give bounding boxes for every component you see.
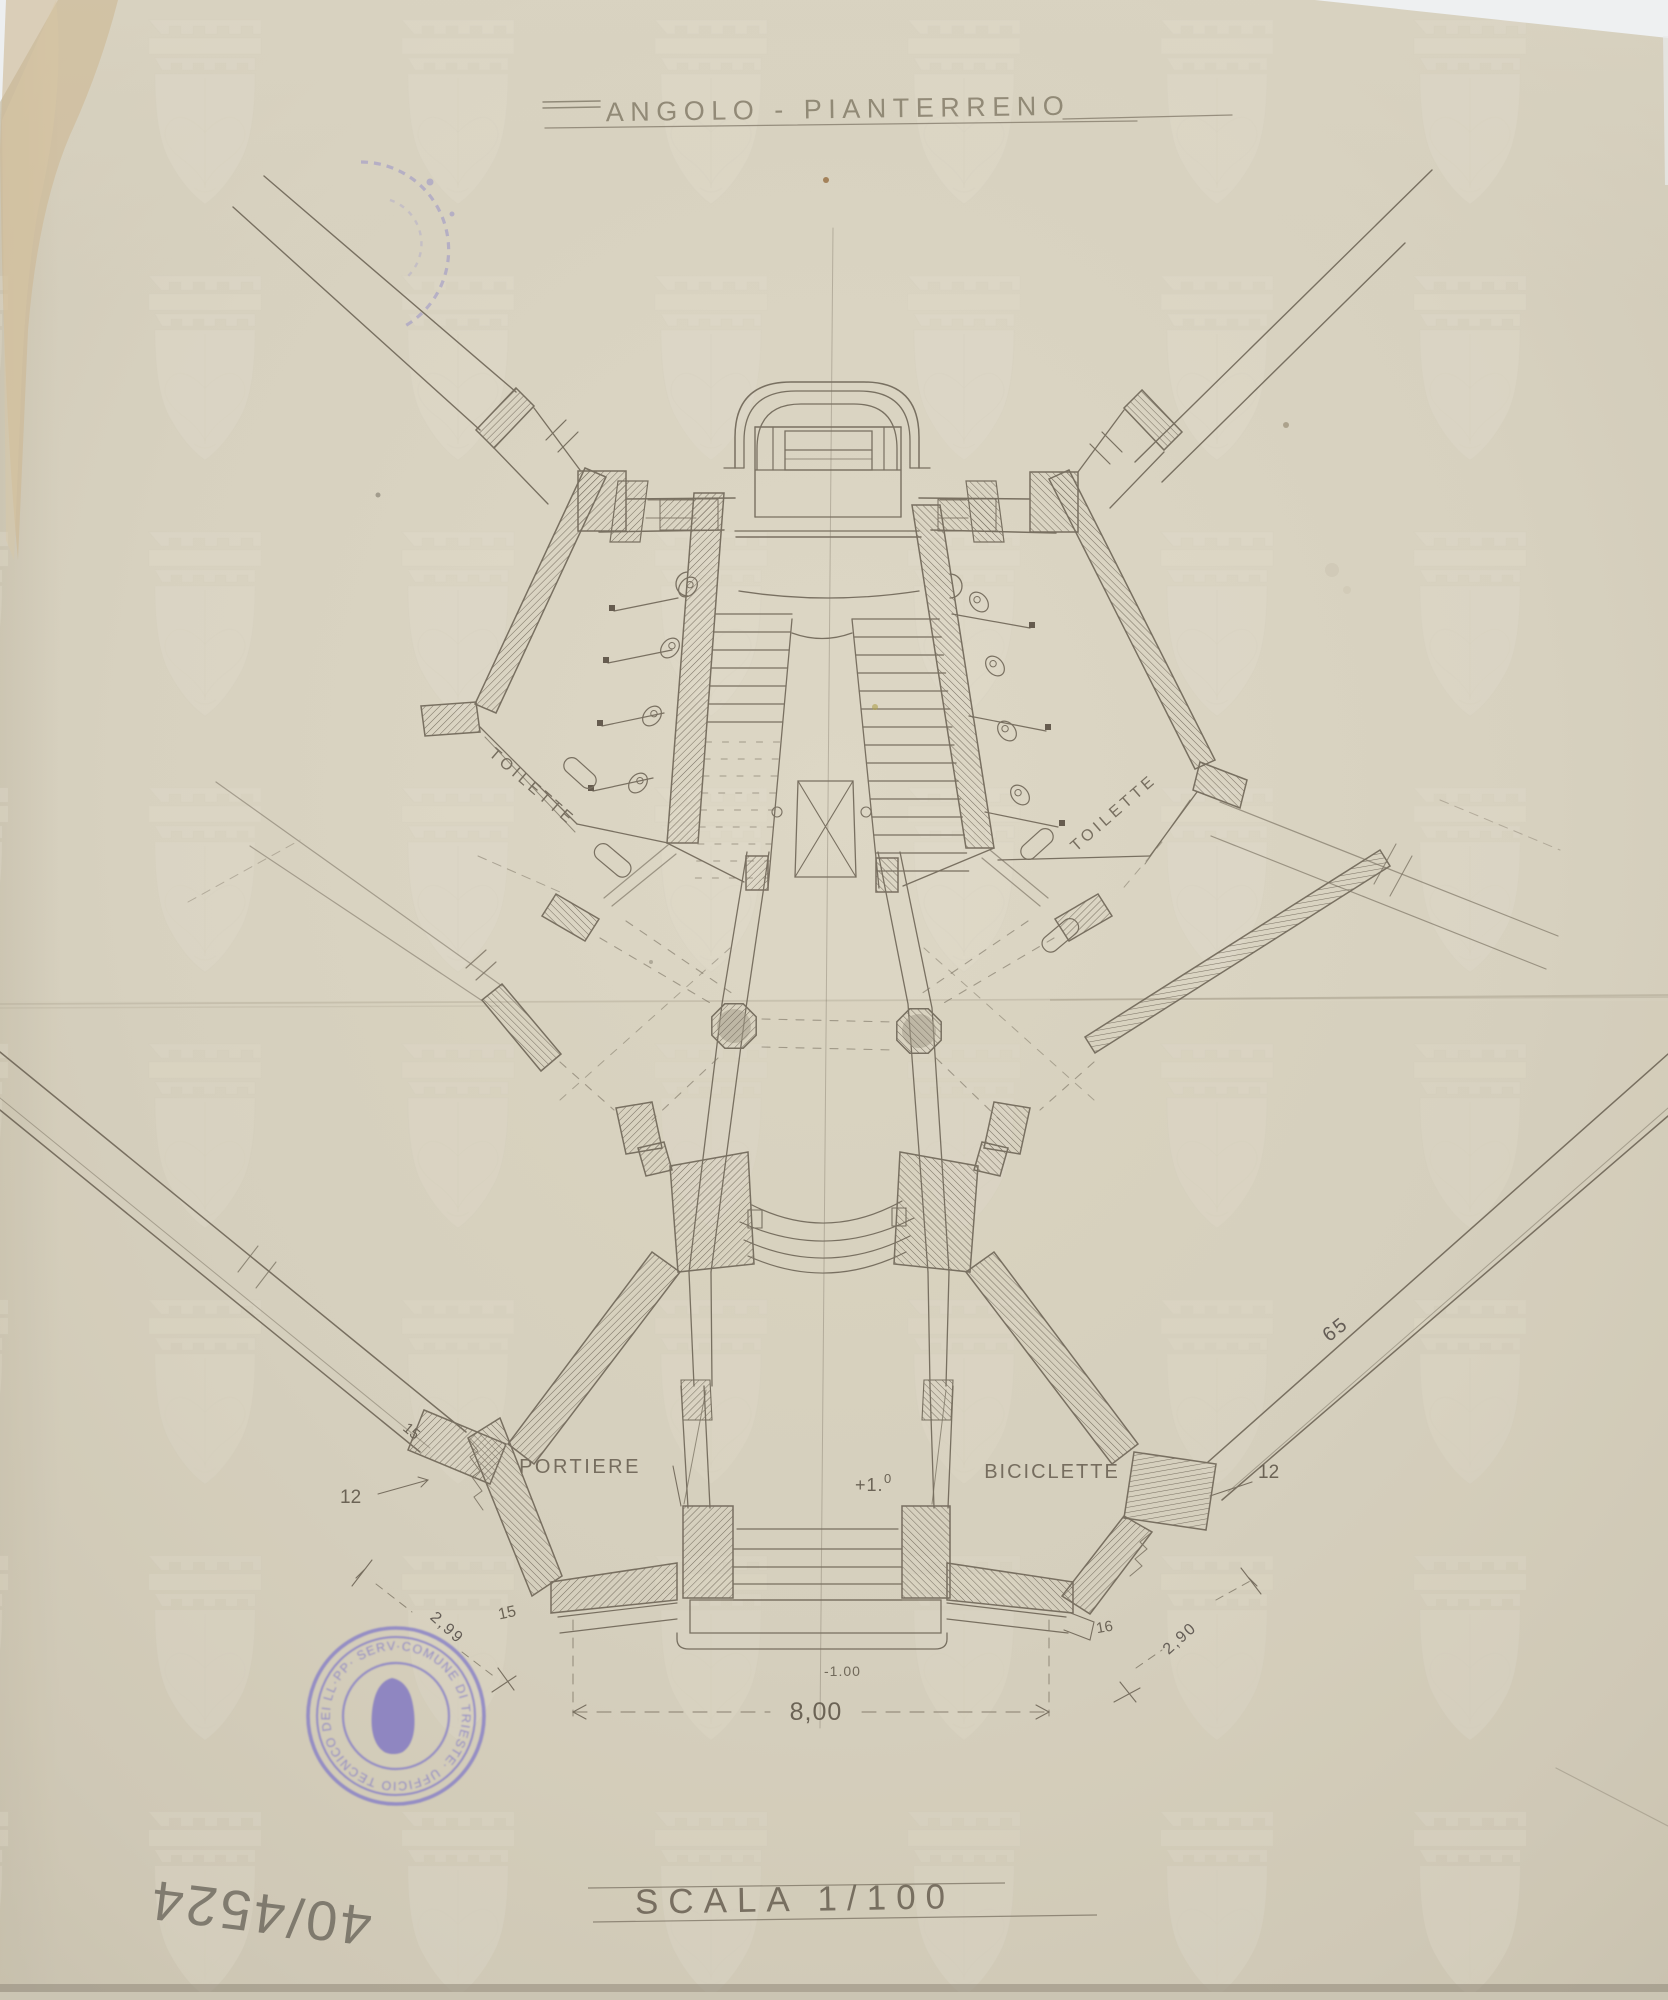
svg-text:+1.: +1.: [855, 1475, 884, 1495]
svg-text:15: 15: [497, 1603, 518, 1623]
svg-text:SCALA 1/100: SCALA 1/100: [635, 1877, 956, 1922]
svg-text:12: 12: [1258, 1462, 1279, 1483]
svg-text:8,00: 8,00: [790, 1698, 843, 1726]
svg-text:12: 12: [340, 1487, 361, 1508]
svg-text:BICICLETTE: BICICLETTE: [984, 1461, 1120, 1483]
svg-text:PORTIERE: PORTIERE: [519, 1456, 641, 1478]
svg-text:16: 16: [1095, 1618, 1114, 1638]
svg-text:-1.00: -1.00: [824, 1663, 861, 1679]
svg-text:0: 0: [884, 1471, 891, 1486]
